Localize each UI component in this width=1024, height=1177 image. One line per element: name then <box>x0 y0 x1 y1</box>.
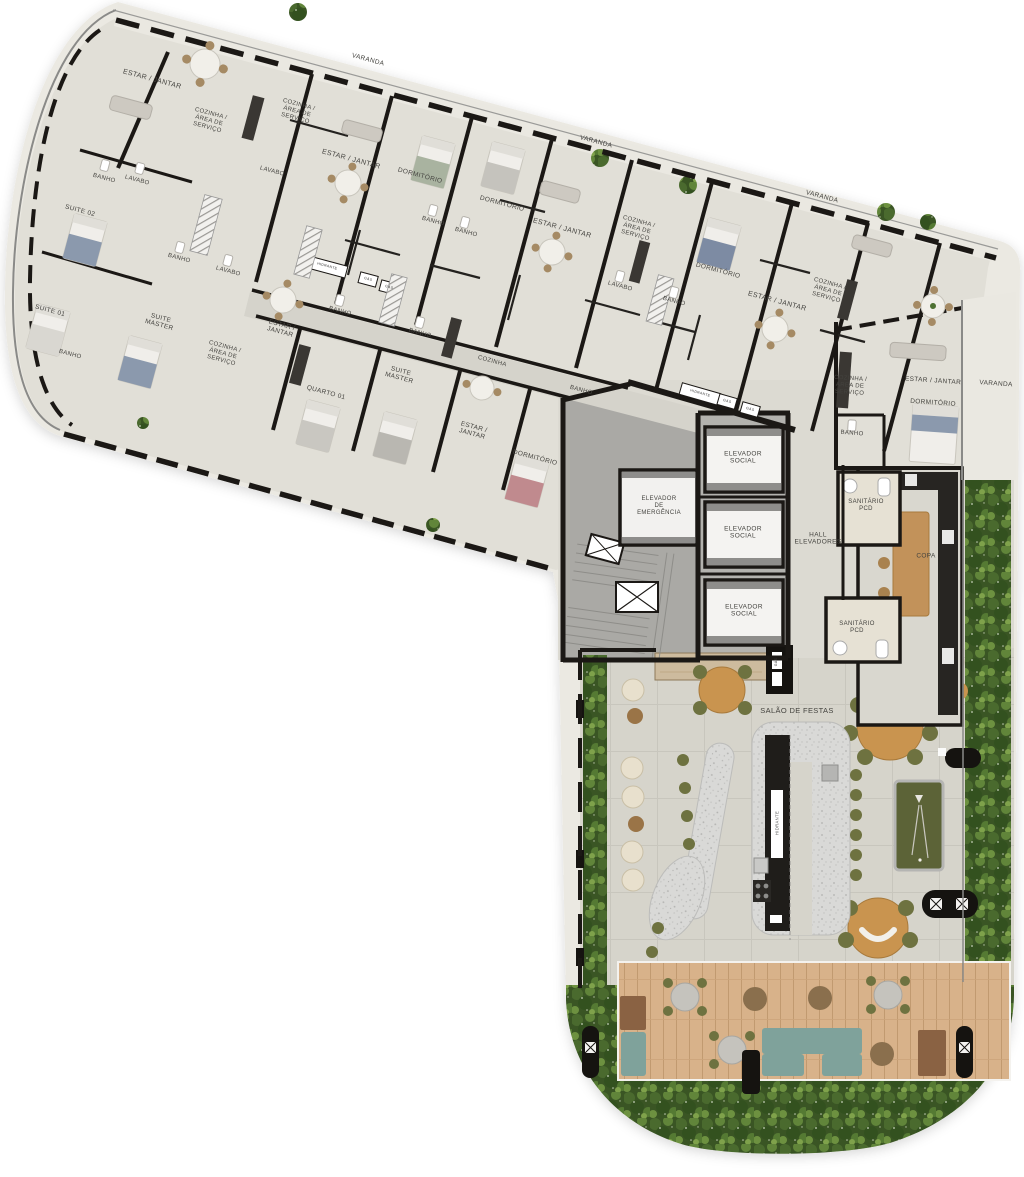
floor-plan-canvas: ESTAR / JANTARCOZINHA / ÁREA DE SERVIÇOC… <box>0 0 1024 1177</box>
wing-varanda-floor <box>962 292 1016 480</box>
floor-plan-svg <box>0 0 1024 1177</box>
left-hedge <box>583 655 607 1002</box>
elevator-social-2-cabin <box>705 502 783 567</box>
bar-counter <box>752 722 862 940</box>
elevator-emergency-cabin <box>620 470 697 545</box>
deck-terrace <box>582 962 1010 1094</box>
elevator-social-1-cabin <box>705 427 783 492</box>
pool-table <box>895 781 943 870</box>
elevator-social-3-cabin <box>705 580 783 645</box>
cooktop-icon <box>753 880 771 902</box>
